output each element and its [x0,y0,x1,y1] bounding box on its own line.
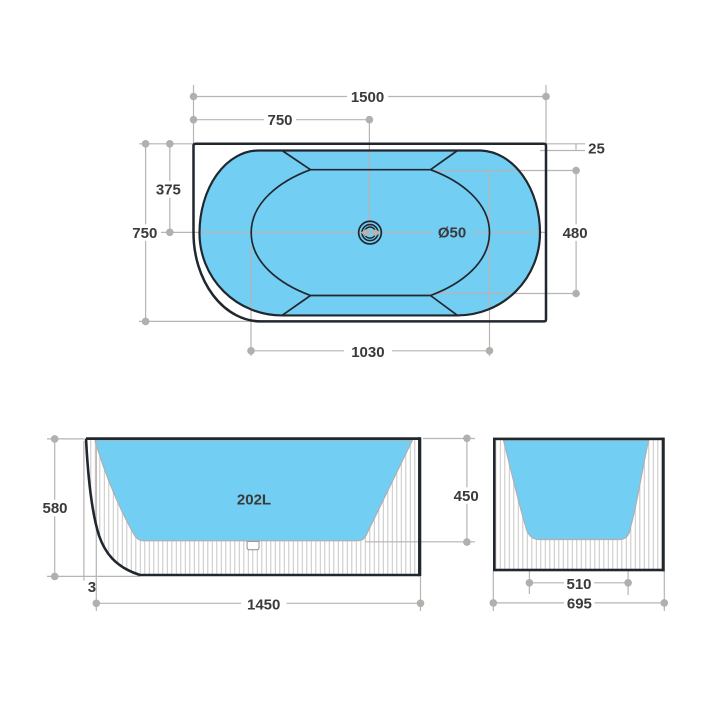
svg-text:375: 375 [156,182,181,199]
svg-text:695: 695 [567,595,592,612]
svg-text:202L: 202L [237,491,271,508]
svg-text:750: 750 [267,112,292,129]
svg-text:450: 450 [454,488,479,505]
svg-text:580: 580 [42,500,67,517]
svg-text:1500: 1500 [351,89,384,106]
svg-text:1030: 1030 [351,344,384,361]
svg-text:510: 510 [566,576,591,593]
svg-text:1450: 1450 [247,597,280,614]
svg-text:750: 750 [132,225,157,242]
svg-text:3: 3 [88,579,96,596]
svg-text:480: 480 [563,225,588,242]
svg-text:25: 25 [588,140,605,157]
svg-text:Ø50: Ø50 [438,225,466,242]
